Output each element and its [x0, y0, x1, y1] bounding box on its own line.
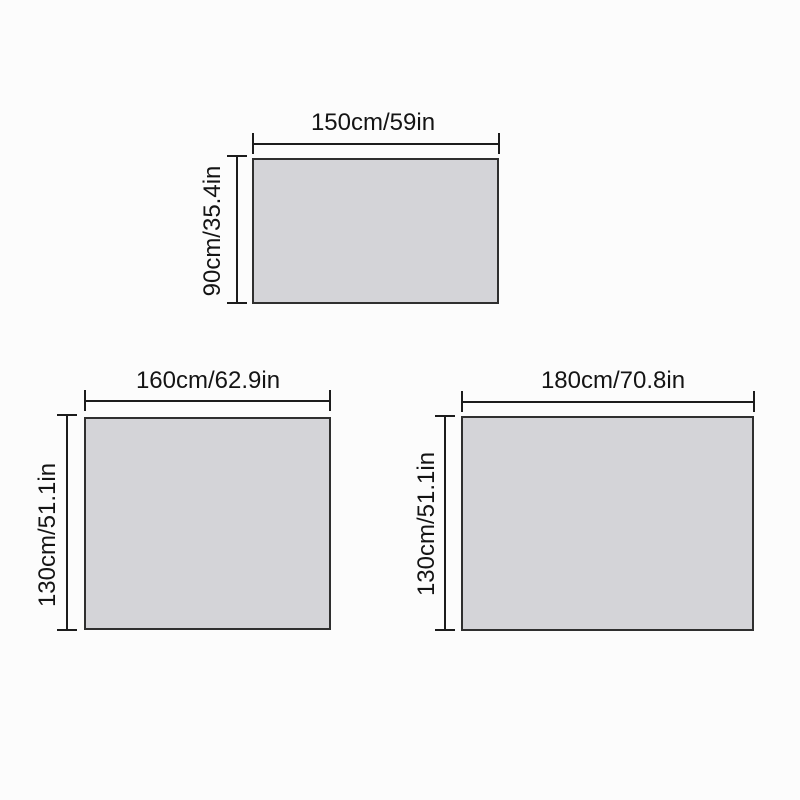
height-label: 130cm/51.1in — [35, 463, 61, 607]
dimension-tick — [227, 302, 247, 304]
fabric-panel-rect — [84, 417, 331, 630]
width-label: 180cm/70.8in — [541, 368, 685, 394]
dimension-tick — [227, 155, 247, 157]
height-label: 90cm/35.4in — [200, 166, 226, 297]
dimension-tick — [461, 391, 463, 412]
height-label: 130cm/51.1in — [414, 452, 440, 596]
width-dimension-line — [252, 143, 500, 145]
fabric-panel-rect — [461, 416, 754, 631]
width-label: 160cm/62.9in — [136, 368, 280, 394]
height-dimension-line — [66, 415, 68, 631]
dimension-tick — [252, 133, 254, 154]
dimension-tick — [57, 414, 77, 416]
dimension-tick — [57, 629, 77, 631]
dimension-tick — [498, 133, 500, 154]
dimension-tick — [84, 390, 86, 411]
width-dimension-line — [84, 400, 331, 402]
dimension-tick — [753, 391, 755, 412]
height-dimension-line — [444, 416, 446, 631]
fabric-panel-rect — [252, 158, 499, 304]
width-dimension-line — [461, 401, 755, 403]
dimension-tick — [435, 415, 455, 417]
size-chart-canvas: 150cm/59in 90cm/35.4in 160cm/62.9in 130c… — [0, 0, 800, 800]
dimension-tick — [435, 629, 455, 631]
height-dimension-line — [236, 156, 238, 303]
dimension-tick — [329, 390, 331, 411]
width-label: 150cm/59in — [311, 110, 435, 136]
